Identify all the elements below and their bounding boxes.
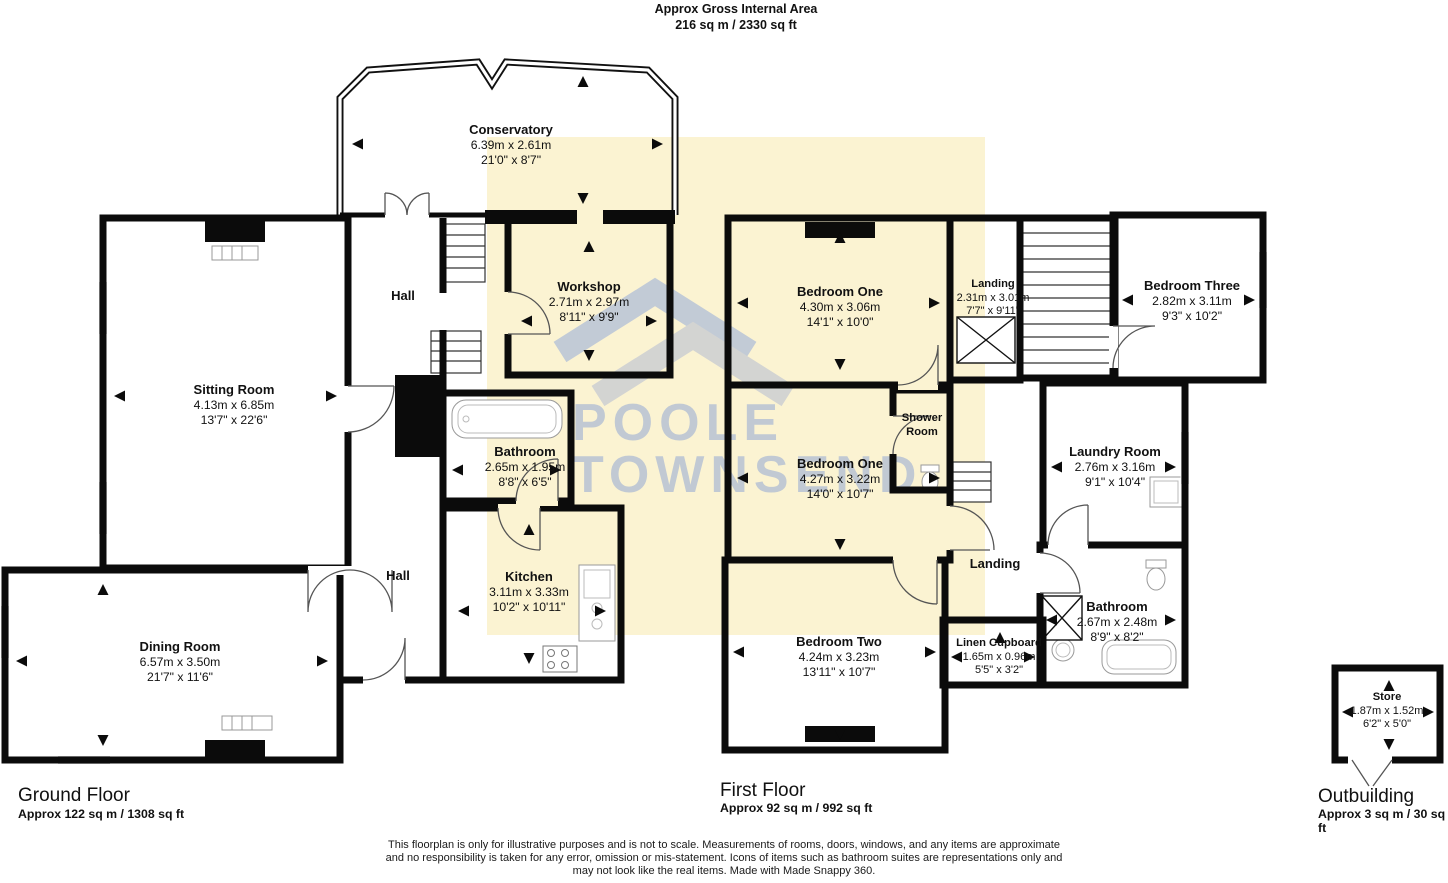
outbuilding-title: Outbuilding — [1318, 786, 1414, 808]
toilet-icon — [1146, 560, 1166, 590]
floorplan-page: POOLE TOWNSEND — [0, 0, 1448, 883]
room-label-dining-room: Dining Room 6.57m x 3.50m 21'7" x 11'6" — [140, 639, 221, 685]
bathtub-icon — [452, 400, 562, 438]
room-label-linen-cupboard: Linen Cupboard 1.65m x 0.96m 5'5" x 3'2" — [956, 637, 1042, 677]
outbuilding-area: Approx 3 sq m / 30 sq ft — [1318, 807, 1448, 835]
room-label-hall-upper: Hall — [391, 288, 415, 304]
watermark-line1: POOLE — [572, 394, 784, 452]
room-label-bedroom-one-b: Bedroom One 4.27m x 3.22m 14'0" x 10'7" — [797, 456, 883, 502]
room-label-bedroom-two: Bedroom Two 4.24m x 3.23m 13'11" x 10'7" — [796, 634, 882, 680]
ground-floor-title: Ground Floor — [18, 785, 130, 807]
room-label-laundry-room: Laundry Room 2.76m x 3.16m 9'1" x 10'4" — [1069, 444, 1161, 490]
room-label-shower-room: Shower Room — [891, 412, 953, 439]
radiator-icon — [212, 246, 272, 730]
gross-internal-area-header: Approx Gross Internal Area 216 sq m / 23… — [655, 1, 818, 34]
bathtub-ff-icon — [1102, 640, 1176, 674]
basin-icon — [1052, 639, 1074, 661]
header-title: Approx Gross Internal Area — [655, 1, 818, 17]
stove-icon — [543, 646, 577, 672]
room-label-workshop: Workshop 2.71m x 2.97m 8'11" x 9'9" — [549, 279, 630, 325]
disclaimer: This floorplan is only for illustrative … — [0, 839, 1448, 878]
room-label-bathroom-ff: Bathroom 2.67m x 2.48m 8'9" x 8'2" — [1077, 599, 1158, 645]
disclaimer-line1: This floorplan is only for illustrative … — [0, 839, 1448, 852]
room-label-landing-ff: Landing 2.31m x 3.01m 7'7" x 9'11" — [957, 278, 1030, 318]
first-floor-title: First Floor — [720, 780, 806, 802]
disclaimer-line3: may not look like the real items. Made w… — [0, 865, 1448, 878]
room-label-landing-lower: Landing — [970, 556, 1021, 572]
floorplan-drawing: POOLE TOWNSEND — [0, 0, 1448, 883]
room-label-store: Store 1.87m x 1.52m 6'2" x 5'0" — [1351, 691, 1424, 731]
room-label-bathroom-gf: Bathroom 2.65m x 1.95m 8'8" x 6'5" — [485, 444, 566, 490]
room-label-sitting-room: Sitting Room 4.13m x 6.85m 13'7" x 22'6" — [194, 382, 275, 428]
room-label-bedroom-three: Bedroom Three 2.82m x 3.11m 9'3" x 10'2" — [1144, 278, 1240, 324]
room-label-kitchen: Kitchen 3.11m x 3.33m 10'2" x 10'11" — [489, 569, 569, 615]
kitchen-sink-icon — [579, 565, 615, 641]
room-label-bedroom-one-a: Bedroom One 4.30m x 3.06m 14'1" x 10'0" — [797, 284, 883, 330]
ground-floor-area: Approx 122 sq m / 1308 sq ft — [18, 807, 184, 821]
disclaimer-line2: and no responsibility is taken for any e… — [0, 852, 1448, 865]
first-floor-area: Approx 92 sq m / 992 sq ft — [720, 801, 872, 815]
header-area: 216 sq m / 2330 sq ft — [655, 17, 818, 33]
room-label-conservatory: Conservatory 6.39m x 2.61m 21'0" x 8'7" — [469, 122, 553, 168]
room-label-hall-lower: Hall — [386, 568, 410, 584]
